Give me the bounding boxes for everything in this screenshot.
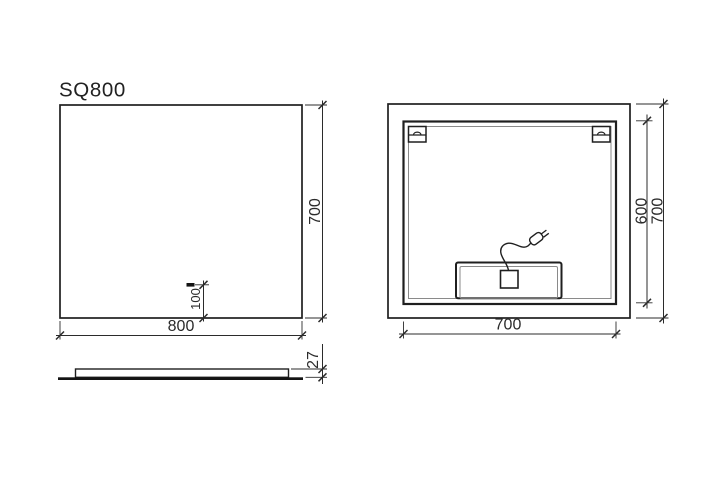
dim-label-back-frame-height: 600 [634, 198, 651, 225]
mirror-front-outline [60, 105, 302, 318]
front-view [60, 105, 302, 318]
dim-front-height: 700 [305, 101, 327, 323]
touch-sensor-mark [187, 283, 195, 287]
technical-drawing-sheet: SQ800 100 800 700 [0, 0, 707, 500]
dim-label-back-mirror-height: 700 [650, 198, 667, 225]
dim-label-front-height: 700 [307, 198, 324, 225]
dim-label-thickness: 27 [305, 351, 322, 369]
dim-label-back-width: 700 [495, 317, 522, 334]
model-title: SQ800 [59, 79, 126, 102]
bracket-body [593, 127, 611, 143]
dim-label-sensor-offset: 100 [188, 288, 203, 310]
hanging-bracket-right [593, 127, 611, 143]
mirror-dimension-drawing: SQ800 100 800 700 [0, 0, 707, 500]
hanging-bracket-left [409, 127, 427, 143]
driver-box [501, 271, 519, 289]
backing-profile [76, 369, 289, 377]
side-view [58, 369, 303, 380]
back-view [388, 104, 630, 318]
bracket-body [409, 127, 427, 143]
dim-label-front-width: 800 [168, 318, 195, 335]
dim-front-width: 800 [56, 318, 306, 340]
dim-back-width: 700 [399, 317, 621, 339]
glass-edge-line [58, 377, 303, 380]
